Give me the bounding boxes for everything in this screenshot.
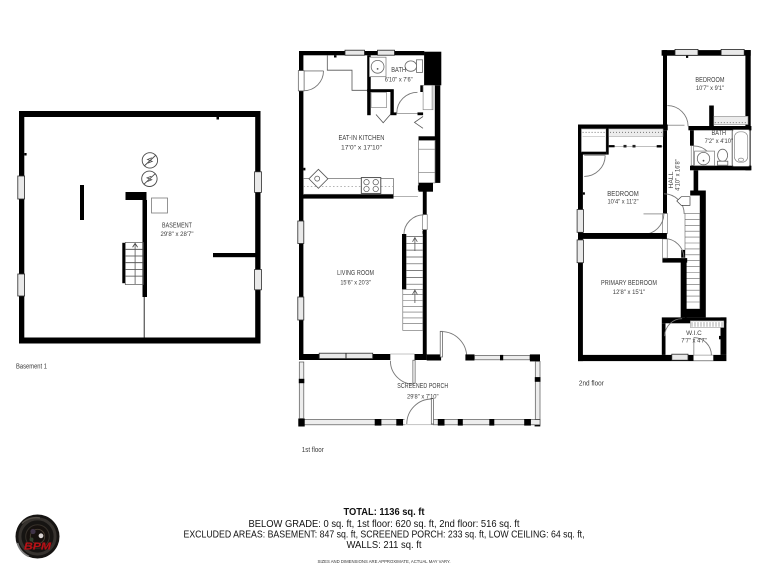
- svg-text:15'6" x 20'3": 15'6" x 20'3": [340, 279, 371, 286]
- svg-text:WALLS: 211 sq. ft: WALLS: 211 sq. ft: [347, 540, 422, 551]
- svg-text:10'7" x 9'1": 10'7" x 9'1": [696, 85, 724, 92]
- svg-text:1st floor: 1st floor: [302, 445, 324, 454]
- svg-text:SCREENED PORCH: SCREENED PORCH: [397, 383, 448, 390]
- svg-text:BEDROOM: BEDROOM: [607, 191, 639, 198]
- svg-text:17'0" x 17'10": 17'0" x 17'10": [341, 144, 382, 151]
- svg-text:Basement 1: Basement 1: [16, 362, 47, 371]
- svg-text:7'7" x 4'7": 7'7" x 4'7": [681, 338, 707, 345]
- svg-text:EAT-IN KITCHEN: EAT-IN KITCHEN: [339, 135, 385, 142]
- svg-text:TOTAL: 1136 sq. ft: TOTAL: 1136 sq. ft: [344, 507, 425, 518]
- svg-text:PRIMARY BEDROOM: PRIMARY BEDROOM: [601, 280, 657, 287]
- svg-text:LIVING ROOM: LIVING ROOM: [337, 270, 374, 277]
- svg-text:W.I.C: W.I.C: [686, 330, 702, 337]
- svg-text:29'8" x 7'10": 29'8" x 7'10": [407, 394, 439, 401]
- svg-text:2nd floor: 2nd floor: [579, 379, 604, 388]
- svg-text:BEDROOM: BEDROOM: [695, 77, 724, 84]
- svg-text:SIZES AND DIMENSIONS ARE APPRO: SIZES AND DIMENSIONS ARE APPROXIMATE, AC…: [318, 559, 451, 565]
- svg-text:10'4" x 11'2": 10'4" x 11'2": [608, 199, 639, 206]
- svg-text:BPM: BPM: [24, 542, 52, 553]
- svg-text:EXCLUDED AREAS: BASEMENT: 847: EXCLUDED AREAS: BASEMENT: 847 sq. ft, SC…: [184, 530, 585, 541]
- svg-text:BASEMENT: BASEMENT: [162, 222, 193, 229]
- svg-text:12'8" x 15'1": 12'8" x 15'1": [613, 289, 645, 296]
- svg-text:BATH: BATH: [391, 67, 406, 74]
- svg-text:BATH: BATH: [712, 130, 727, 137]
- svg-text:4'10" x 16'8": 4'10" x 16'8": [674, 159, 681, 190]
- svg-text:BELOW GRADE: 0 sq. ft, 1st flo: BELOW GRADE: 0 sq. ft, 1st floor: 620 sq…: [249, 519, 520, 530]
- svg-text:29'8" x 28'7": 29'8" x 28'7": [161, 231, 194, 238]
- svg-text:7'2" x 4'10": 7'2" x 4'10": [705, 138, 733, 145]
- svg-text:6'10" x 7'6": 6'10" x 7'6": [385, 76, 413, 83]
